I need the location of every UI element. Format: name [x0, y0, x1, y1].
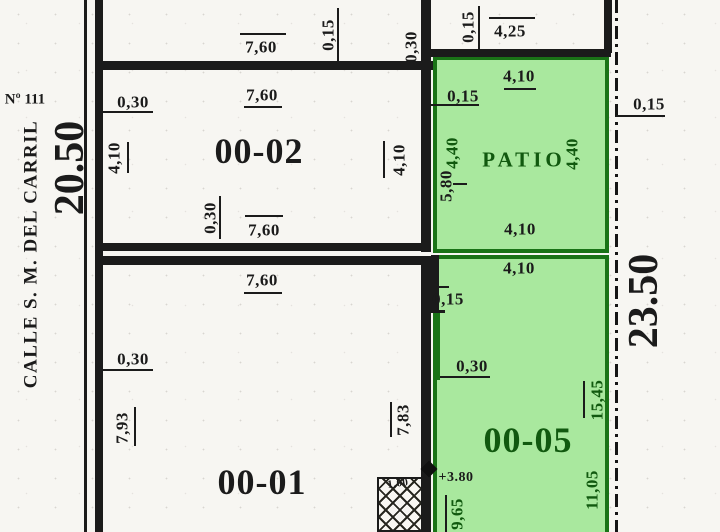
dimension-label: 7,93	[114, 412, 131, 444]
wall-top-right-corner	[604, 0, 612, 53]
cadastral-plan: 00-02 00-01 00-05 PATIO 20.50 23.50 CALL…	[0, 0, 720, 532]
room-label-00-02: 00-02	[215, 133, 304, 169]
dimension-label: 15,45	[589, 380, 606, 421]
dim-tick	[390, 402, 392, 437]
dim-tick	[134, 407, 136, 446]
dim-tick	[127, 142, 129, 173]
dimension-label: 5,80	[438, 170, 455, 202]
dim-tick	[440, 376, 490, 378]
dim-tick	[245, 215, 283, 217]
property-boundary-dashdot-line	[615, 0, 618, 532]
dimension-label: 4,10	[106, 142, 123, 174]
dimension-label: 4,10	[504, 221, 536, 238]
dimension-label: 0,15	[447, 88, 479, 105]
depth-dimension: 23.50	[623, 254, 665, 349]
dimension-label: 0,15	[320, 19, 337, 51]
street-number: Nº 111	[5, 93, 45, 108]
dim-tick	[504, 88, 536, 90]
dimension-label: 0,15	[432, 291, 464, 308]
wall-00-01-top	[95, 256, 431, 265]
building-left-wall	[95, 0, 103, 532]
dimension-label: 4,10	[503, 260, 535, 277]
patio-inner-line	[437, 310, 440, 380]
dimension-label: 0,30	[117, 94, 149, 111]
dim-tick	[616, 115, 665, 117]
dimension-label: 4,10	[391, 144, 408, 176]
dimension-label: 9,65	[449, 498, 466, 530]
wall-lot-jog-step	[431, 310, 445, 313]
partition-tick-top-right	[478, 6, 480, 56]
dimension-label: 4,40	[444, 137, 461, 169]
dimension-label: 4,25	[494, 23, 526, 40]
dimension-label: 7,60	[246, 87, 278, 104]
dimension-label: 0,30	[456, 358, 488, 375]
dimension-label: 11,05	[584, 470, 601, 510]
street-line	[84, 0, 87, 532]
dim-tick	[489, 17, 535, 19]
dim-tick	[244, 292, 282, 294]
patio-label: PATIO	[482, 150, 565, 171]
wall-top-left	[95, 61, 433, 70]
dimension-label: 0,30	[202, 202, 219, 234]
dimension-label: 0,15	[460, 11, 477, 43]
room-label-00-01: 00-01	[218, 464, 307, 500]
frontage-dimension: 20.50	[49, 121, 91, 216]
dimension-label: 7,60	[245, 39, 277, 56]
dimension-label: 0,30	[117, 351, 149, 368]
dim-tick	[383, 141, 385, 178]
wall-center-vertical-upper	[421, 0, 431, 252]
dim-tick	[244, 106, 282, 108]
dim-tick	[583, 381, 585, 418]
wall-00-02-bottom	[95, 243, 431, 251]
dim-tick	[431, 286, 449, 288]
dimension-label: 7,60	[248, 222, 280, 239]
street-name: CALLE S. M. DEL CARRIL	[22, 120, 41, 388]
dim-tick	[240, 33, 286, 35]
dim-tick	[97, 369, 153, 371]
dimension-label: 0,15	[633, 96, 665, 113]
dimension-label: +3.80	[439, 471, 474, 485]
wall-top-right	[421, 49, 611, 57]
lot-label-00-05: 00-05	[484, 422, 573, 458]
dimension-label: 7,83	[395, 404, 412, 436]
dimension-label: 4,40	[564, 138, 581, 170]
dimension-label: 7,60	[246, 272, 278, 289]
dimension-label: 4,10	[503, 68, 535, 85]
dimension-label: 0,30	[403, 31, 420, 63]
